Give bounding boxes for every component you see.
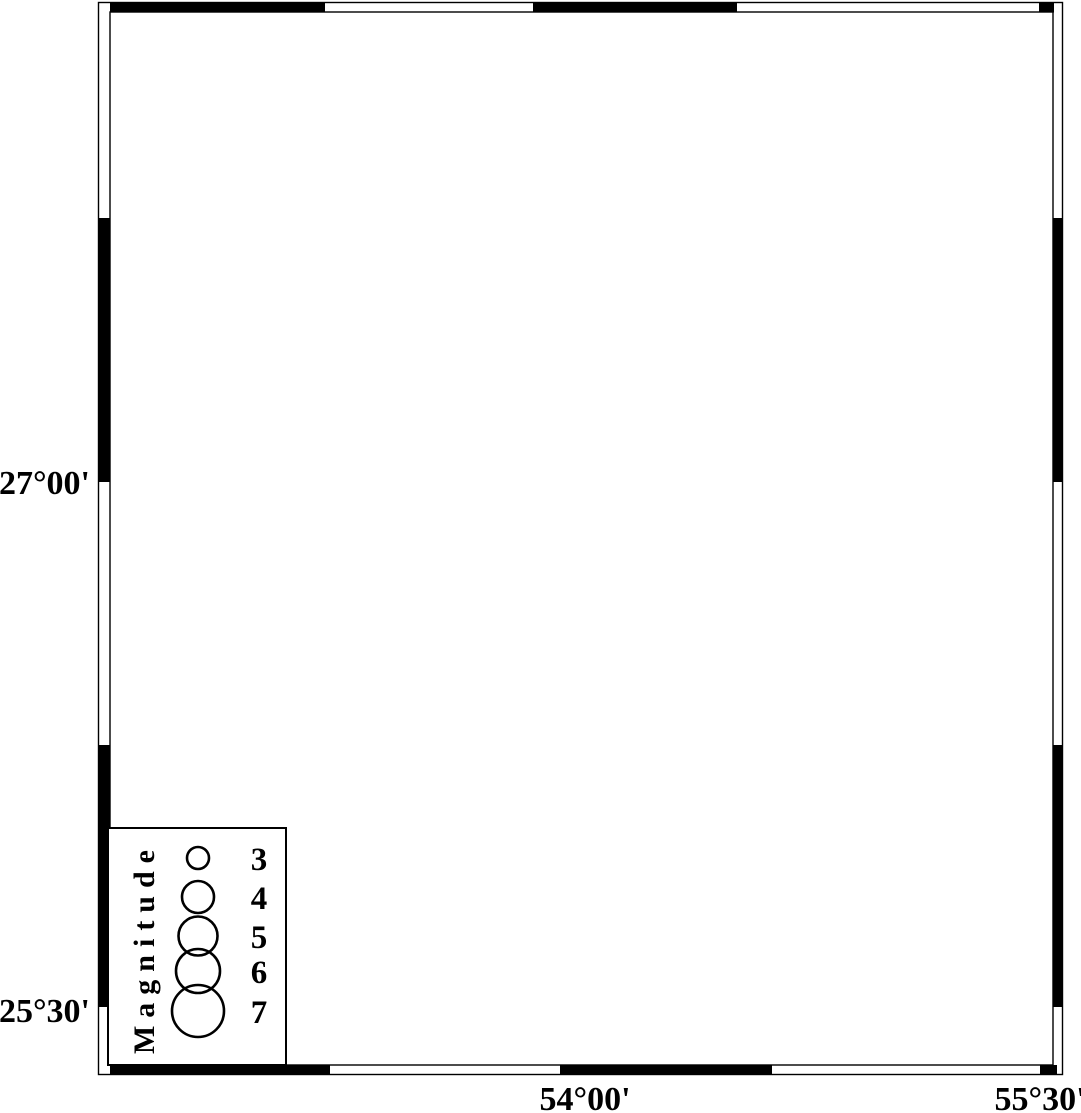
frame-seg bbox=[560, 1065, 772, 1075]
legend-title: Magnitude bbox=[128, 842, 161, 1054]
longitude-label: 54°00' bbox=[539, 1081, 630, 1113]
frame-seg bbox=[1053, 218, 1063, 482]
legend-magnitude-value: 4 bbox=[251, 881, 268, 917]
legend-magnitude-value: 3 bbox=[251, 842, 268, 878]
frame-seg bbox=[1040, 1065, 1057, 1075]
legend-magnitude-value: 5 bbox=[251, 920, 268, 956]
frame-seg bbox=[533, 3, 737, 13]
latitude-label: 25°30' bbox=[0, 993, 90, 1030]
legend-numbers: 34567 bbox=[251, 842, 268, 1031]
frame-seg bbox=[1053, 745, 1063, 1007]
frame-seg bbox=[110, 3, 325, 13]
frame-seg bbox=[99, 218, 111, 482]
map-canvas: 60 km Magnitude 34567 27°00 bbox=[0, 0, 1081, 1113]
legend-magnitude-value: 7 bbox=[251, 995, 268, 1031]
frame-seg bbox=[1039, 3, 1054, 13]
legend-magnitude-value: 6 bbox=[251, 955, 268, 991]
frame-seg bbox=[110, 1065, 330, 1075]
magnitude-legend: Magnitude 34567 bbox=[108, 828, 286, 1065]
latitude-label: 27°00' bbox=[0, 465, 90, 502]
seismicity-map-figure: 60 km Magnitude 34567 27°00 bbox=[0, 0, 1081, 1113]
longitude-label: 55°30' bbox=[994, 1081, 1081, 1113]
